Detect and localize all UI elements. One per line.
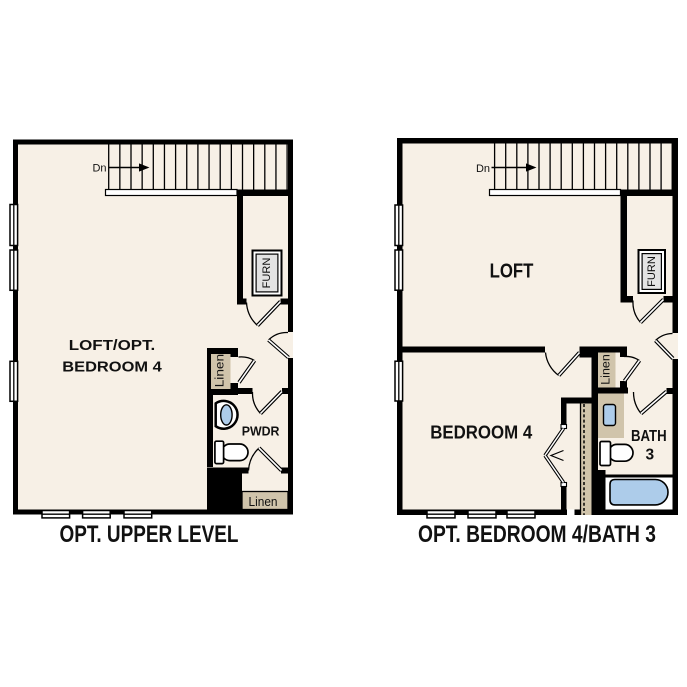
svg-text:BEDROOM 4: BEDROOM 4 (430, 422, 533, 443)
svg-text:FURN: FURN (261, 258, 273, 289)
svg-text:3: 3 (645, 446, 654, 463)
svg-text:BATH: BATH (631, 428, 667, 445)
svg-text:Linen: Linen (249, 494, 278, 509)
svg-text:PWDR: PWDR (242, 423, 280, 438)
svg-text:Dn: Dn (92, 163, 106, 175)
svg-text:Linen: Linen (601, 354, 613, 385)
svg-text:OPT. UPPER LEVEL: OPT. UPPER LEVEL (60, 521, 239, 548)
svg-text:OPT. BEDROOM 4/BATH 3: OPT. BEDROOM 4/BATH 3 (418, 521, 656, 548)
svg-text:LOFT/OPT.: LOFT/OPT. (69, 338, 156, 354)
svg-text:LOFT: LOFT (490, 261, 534, 283)
svg-text:Linen: Linen (215, 354, 227, 387)
svg-text:FURN: FURN (646, 256, 658, 287)
svg-text:BEDROOM 4: BEDROOM 4 (62, 360, 162, 376)
svg-text:Dn: Dn (476, 163, 490, 175)
